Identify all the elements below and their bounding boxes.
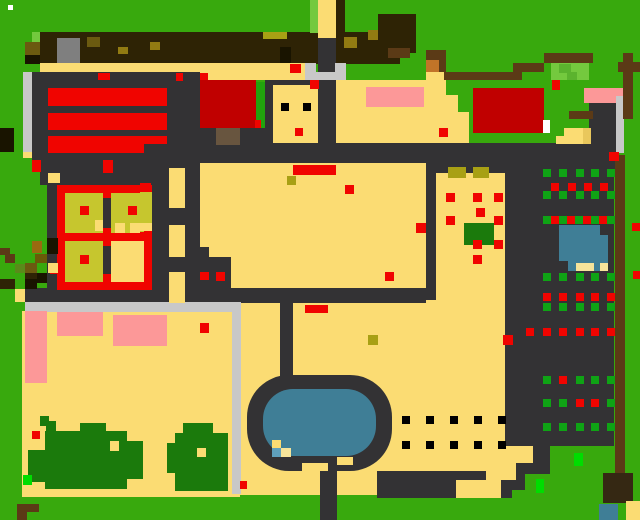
stall-dot [474, 416, 482, 424]
bush-berry [552, 80, 560, 90]
red-house-east [473, 88, 544, 133]
sand-wedge [503, 446, 533, 463]
apple [494, 193, 503, 202]
awning-1 [25, 311, 47, 383]
window-right [303, 103, 311, 111]
crate-gold [583, 128, 591, 144]
crop [607, 169, 615, 177]
red-banner [293, 165, 336, 175]
crop [543, 273, 551, 281]
totem-mid [140, 223, 152, 231]
fence-step [513, 63, 544, 72]
apple [503, 335, 513, 345]
chimney-block [57, 38, 80, 65]
court-dot [385, 272, 394, 281]
pond-south-path [320, 471, 337, 520]
crop [576, 423, 584, 431]
path-tree-edge [336, 0, 345, 33]
tree-canopy [378, 14, 416, 36]
log-shadow [47, 238, 58, 254]
crop [576, 293, 584, 301]
crop [559, 399, 567, 407]
apple [439, 128, 448, 137]
door-dot [295, 128, 303, 136]
court-speck [287, 176, 296, 185]
crop [591, 273, 599, 281]
log-gap [48, 263, 58, 273]
red-marker [103, 160, 113, 173]
trunk-shadow [25, 55, 40, 64]
corner-log [17, 504, 39, 512]
east-road [200, 143, 426, 163]
door-1 [169, 168, 185, 208]
courtyard [200, 160, 426, 288]
log-gap [15, 289, 25, 302]
crop [583, 216, 591, 224]
canopy-speck [87, 37, 100, 47]
roof-dot [98, 73, 110, 80]
crop [551, 216, 559, 224]
log-shadow [37, 273, 47, 283]
main-street [318, 38, 336, 143]
pond-sand [337, 457, 353, 465]
court-dot [345, 185, 354, 194]
sand-wedge [456, 480, 501, 498]
pond-sand [281, 448, 291, 457]
gate-bar [305, 72, 346, 80]
pixel-map[interactable] [0, 0, 640, 520]
totem [140, 192, 152, 223]
stall-dot [450, 441, 458, 449]
pool-sand [600, 263, 608, 271]
leaf-gap [48, 173, 60, 183]
lime-sprout [574, 453, 583, 466]
fish1-eye [110, 441, 119, 451]
field-dot [609, 152, 619, 161]
stall-dot [426, 441, 434, 449]
bush-patch [567, 72, 577, 80]
south-road [25, 288, 426, 303]
sprout-berry [32, 431, 40, 439]
fish2-tail [167, 443, 175, 473]
pane-dot [128, 206, 137, 215]
path-grass-edge [310, 0, 318, 33]
roof-dot [176, 73, 183, 81]
canopy-speck [150, 42, 160, 50]
hut [603, 473, 633, 503]
crop [576, 328, 584, 336]
crop [559, 423, 567, 431]
ground-patch [426, 300, 436, 346]
pane-light [95, 220, 103, 231]
canopy-speck [263, 32, 287, 39]
totem-base [140, 232, 152, 240]
stripe-3 [48, 136, 144, 153]
court-notch [200, 247, 209, 257]
north-path [318, 0, 336, 38]
trunk-speck [25, 42, 40, 55]
shrub-row [473, 167, 489, 178]
log-shadow [25, 279, 37, 289]
red-marker [32, 160, 41, 172]
tree-branch [388, 48, 410, 58]
crop [543, 216, 551, 224]
fish2-fin [183, 423, 213, 433]
flag-pole [232, 303, 241, 494]
pool-sand [576, 263, 594, 271]
crop [584, 183, 592, 191]
crop [543, 328, 551, 336]
ne-wedge [458, 112, 469, 143]
hut-water [599, 504, 618, 520]
crop [551, 183, 559, 191]
pond-path [280, 303, 293, 379]
bench [569, 111, 593, 119]
crop [543, 293, 551, 301]
apple [446, 216, 455, 225]
apple [446, 193, 455, 202]
court-dot [200, 323, 209, 333]
fish1-body [45, 431, 127, 489]
stall-dot [498, 441, 506, 449]
edge-berry [632, 223, 640, 231]
crop [559, 191, 567, 199]
crop [591, 399, 599, 407]
sidewalk [25, 302, 241, 312]
crop [543, 303, 551, 311]
lime-sprout [536, 479, 544, 493]
stall-dot [498, 416, 506, 424]
column-base [23, 152, 32, 158]
awning-3 [113, 315, 167, 346]
edge-berry [633, 271, 640, 279]
crop [607, 399, 615, 407]
moss [15, 264, 25, 273]
gate-lantern [310, 80, 319, 89]
canopy-speck [344, 37, 357, 48]
canopy-shadow [280, 47, 291, 63]
crop [591, 169, 599, 177]
awning-2 [57, 312, 103, 336]
pane-light [115, 223, 125, 233]
window-left [281, 103, 289, 111]
fence [544, 53, 593, 63]
frame-gap [103, 246, 111, 274]
door-3 [169, 272, 185, 303]
crop [591, 303, 599, 311]
fence [444, 72, 522, 80]
crop [591, 191, 599, 199]
crop [607, 423, 615, 431]
crop [576, 399, 584, 407]
fish2-eye [197, 448, 206, 457]
fence-post [623, 53, 633, 119]
court-dot [216, 272, 225, 281]
pond-sand [302, 463, 328, 471]
canopy-speck [118, 47, 128, 54]
crop [559, 376, 567, 384]
apple [494, 240, 503, 249]
fish2-body [175, 433, 228, 491]
east-fence-line [615, 155, 625, 473]
pane-dot [80, 206, 89, 215]
crop [591, 376, 599, 384]
pool-notch [559, 261, 568, 271]
court-dot [416, 223, 426, 233]
court-speck [368, 335, 378, 345]
pane-light [130, 223, 140, 233]
apple [473, 240, 482, 249]
red-mat [305, 305, 328, 313]
crop [567, 216, 575, 224]
house-dot [255, 120, 261, 128]
orchard-road [426, 173, 436, 300]
stripe-3b [144, 136, 167, 144]
hut-sand [626, 501, 640, 520]
crop [543, 376, 551, 384]
crate [556, 136, 564, 144]
crop [607, 293, 615, 301]
frame-gap [103, 198, 111, 228]
crop [607, 376, 615, 384]
crop [543, 423, 551, 431]
crop [543, 399, 551, 407]
crop [559, 293, 567, 301]
crop [576, 273, 584, 281]
shrub-row [448, 167, 466, 178]
stall-dot [402, 416, 410, 424]
crop [576, 169, 584, 177]
crop [543, 169, 551, 177]
silver-column [23, 72, 32, 152]
apple [473, 193, 482, 202]
corner-block [589, 103, 616, 144]
crop [600, 183, 608, 191]
crop [591, 293, 599, 301]
log [25, 263, 37, 273]
crop [568, 183, 576, 191]
log [35, 254, 47, 263]
red-house-west [200, 80, 256, 128]
crop [559, 216, 567, 224]
apple [473, 255, 482, 264]
totem-top [140, 183, 151, 192]
sprout [46, 421, 56, 433]
log [32, 241, 42, 253]
stall-dot [402, 441, 410, 449]
corner-log [17, 512, 27, 520]
stall-dot [426, 416, 434, 424]
apple [476, 208, 485, 217]
awning-ne [366, 87, 424, 107]
crop [607, 273, 615, 281]
crop [591, 216, 599, 224]
apple [494, 216, 503, 225]
pond-shallow [272, 448, 281, 457]
crop [591, 328, 599, 336]
fish1-fin [80, 423, 106, 432]
crop [559, 273, 567, 281]
crop [607, 191, 615, 199]
canopy-speck [368, 30, 378, 40]
fence-gate [426, 60, 439, 72]
court-dot [200, 272, 209, 280]
crop [559, 328, 567, 336]
white-pixel [8, 5, 13, 10]
beach-mid [240, 471, 377, 495]
crop [576, 303, 584, 311]
stall-dot [474, 441, 482, 449]
crop [575, 216, 583, 224]
dark-doorway [0, 128, 14, 152]
pane-dot [80, 255, 89, 264]
gate-lantern [290, 64, 301, 73]
house-porch [216, 128, 240, 145]
market-ground [392, 346, 511, 471]
crop [607, 303, 615, 311]
stripe-1 [48, 88, 167, 106]
door-white [543, 120, 550, 133]
log [5, 254, 15, 263]
crop [599, 216, 607, 224]
crop [526, 328, 534, 336]
crop [607, 216, 615, 224]
crop [576, 191, 584, 199]
crop [607, 328, 615, 336]
crop [543, 191, 551, 199]
fish1-nose [127, 441, 143, 479]
log [0, 279, 15, 289]
crop [559, 303, 567, 311]
sand-wedge [486, 463, 516, 480]
lime-sprout [23, 475, 32, 485]
crop [591, 423, 599, 431]
door-2 [169, 225, 185, 257]
beach-dot [240, 481, 247, 489]
stripe-2 [48, 113, 167, 130]
greenhouse-q4 [111, 241, 144, 282]
crop [576, 376, 584, 384]
stall-dot [450, 416, 458, 424]
crop [559, 169, 567, 177]
